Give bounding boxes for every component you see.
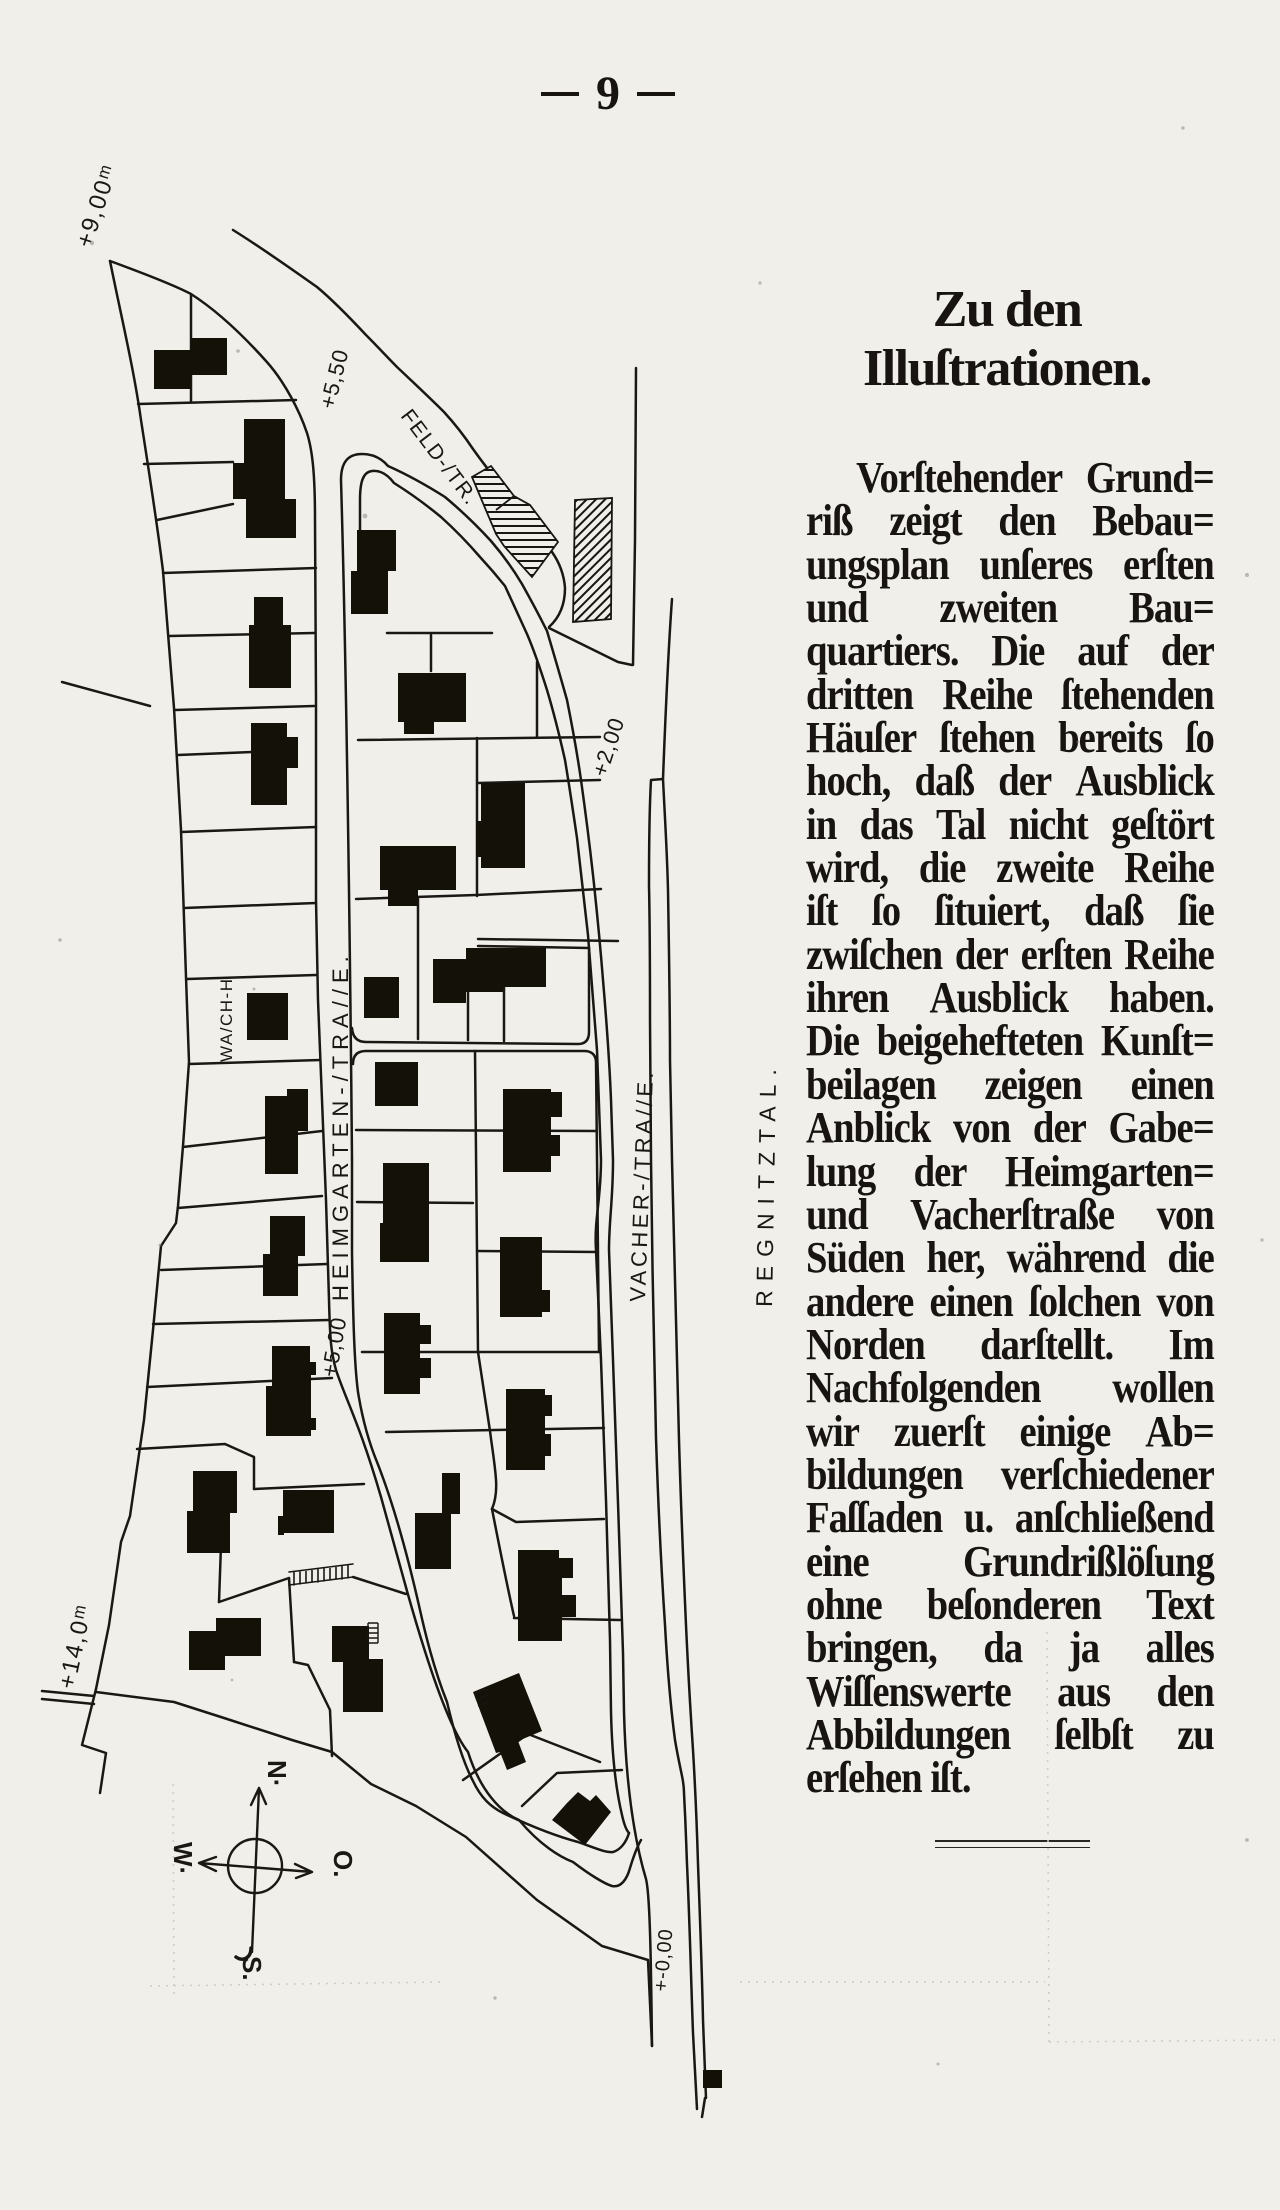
svg-text:HEIMGARTEN-/TRA//E.: HEIMGARTEN-/TRA//E. <box>328 950 353 1301</box>
svg-text:WA/CH-H: WA/CH-H <box>217 978 236 1062</box>
svg-text:+9,00ᵐ: +9,00ᵐ <box>71 160 123 251</box>
svg-text:+5,00: +5,00 <box>316 1315 351 1379</box>
svg-text:O.: O. <box>328 1850 358 1877</box>
svg-text:+5,50: +5,50 <box>315 346 354 411</box>
svg-text:+2,00: +2,00 <box>587 714 630 779</box>
svg-text:+-0,00: +-0,00 <box>650 1927 677 1992</box>
svg-text:S.: S. <box>237 1956 267 1981</box>
svg-text:W·: W· <box>168 1842 198 1875</box>
svg-text:+14,0ᵐ: +14,0ᵐ <box>53 1601 97 1691</box>
svg-text:N·: N· <box>262 1760 292 1787</box>
svg-text:REGNITZTAL.: REGNITZTAL. <box>751 1060 781 1307</box>
